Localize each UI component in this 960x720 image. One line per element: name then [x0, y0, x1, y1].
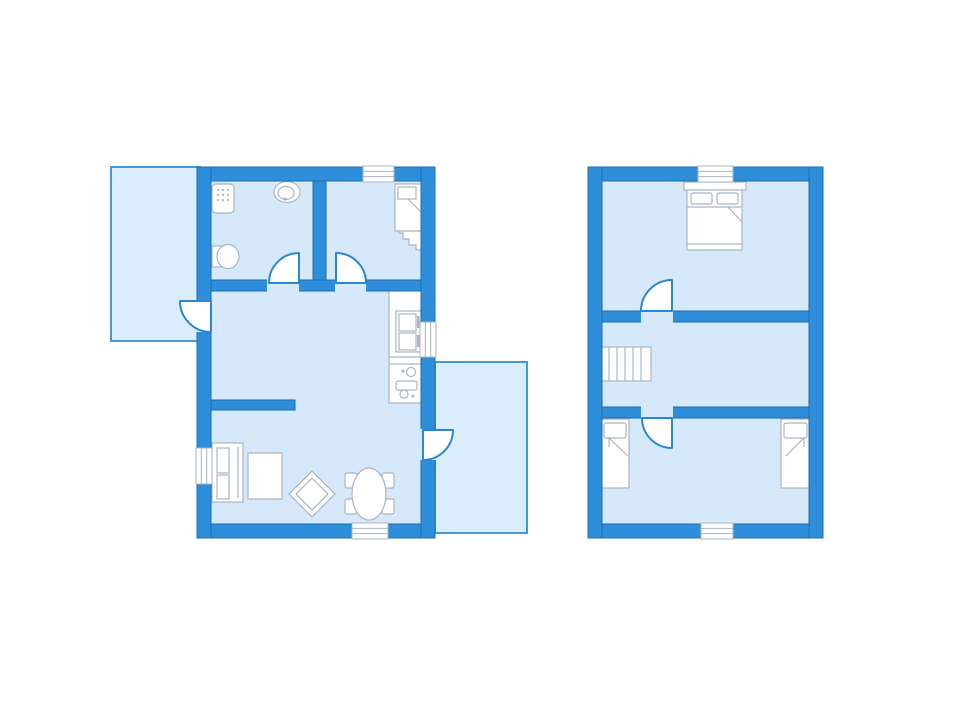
floorplan-page — [0, 0, 960, 720]
coffee-table — [248, 453, 282, 499]
double-bed — [684, 182, 746, 250]
upper-floor — [588, 166, 823, 539]
window-top — [363, 166, 394, 182]
shower — [212, 184, 234, 213]
window-bottom — [701, 523, 733, 539]
terrace-right — [435, 362, 527, 533]
toilet — [212, 245, 239, 269]
sofa — [212, 443, 243, 502]
window-kitchen — [420, 322, 436, 357]
kitchen-unit — [389, 288, 422, 403]
window-top — [698, 166, 733, 182]
single-bed-right — [781, 419, 810, 488]
washbasin — [274, 182, 300, 203]
stairs — [601, 347, 651, 381]
floor-plan — [0, 0, 960, 720]
single-bed-left — [601, 419, 629, 488]
window-left — [196, 448, 212, 484]
ground-floor — [111, 166, 527, 539]
window-bottom — [352, 523, 388, 539]
